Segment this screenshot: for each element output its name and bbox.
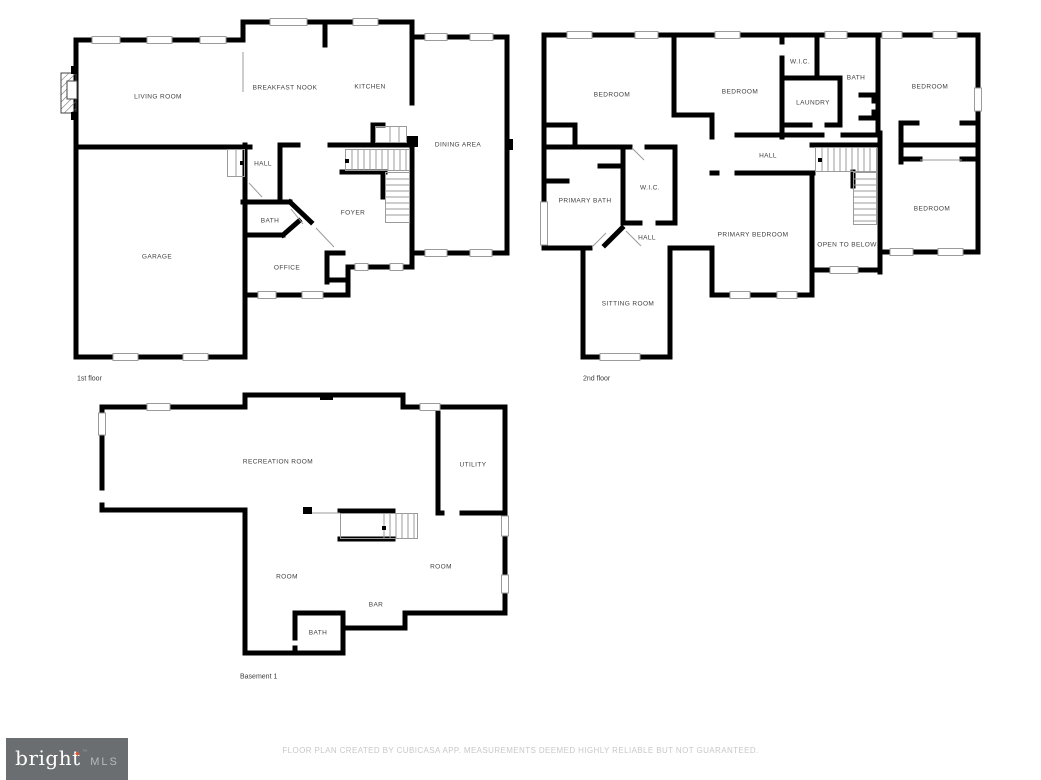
floor-label-basement-1: Basement 1	[240, 674, 277, 681]
second-floor-windows	[541, 32, 982, 361]
room-label-sitting-room: SITTING ROOM	[602, 301, 654, 308]
second-floor-stairs	[816, 148, 877, 225]
basement-linework	[99, 393, 509, 653]
room-label-bedroom-4: BEDROOM	[914, 206, 950, 213]
brightmls-logo: bright✦™MLS	[6, 738, 128, 780]
logo-wordmark: bright	[15, 745, 80, 771]
room-label-hall-3: HALL	[638, 235, 656, 242]
room-label-bar: BAR	[369, 602, 384, 609]
room-label-utility: UTILITY	[460, 462, 487, 469]
room-label-garage: GARAGE	[142, 254, 172, 261]
room-label-bedroom-2: BEDROOM	[722, 89, 758, 96]
room-label-recreation-room: RECREATION ROOM	[243, 459, 313, 466]
room-label-dining-area: DINING AREA	[435, 142, 481, 149]
second-floor-linework	[541, 32, 982, 361]
room-label-hall-2: HALL	[759, 153, 777, 160]
room-label-bath-3: BATH	[309, 630, 327, 637]
trademark-symbol: ™	[82, 749, 87, 755]
floor-label-2nd-floor: 2nd floor	[583, 376, 610, 383]
room-label-open-to-below: OPEN TO BELOW	[817, 242, 877, 249]
disclaimer-text: FLOOR PLAN CREATED BY CUBICASA APP. MEAS…	[0, 746, 1041, 755]
first-floor-windows	[92, 19, 493, 361]
room-label-office: OFFICE	[274, 265, 300, 272]
brightmls-logo-lockup: bright✦™MLS	[15, 745, 119, 771]
first-floor-linework	[61, 19, 513, 361]
room-label-bedroom-1: BEDROOM	[594, 92, 630, 99]
room-label-room-1: ROOM	[276, 574, 298, 581]
room-label-laundry: LAUNDRY	[796, 100, 830, 107]
floor-label-1st-floor: 1st floor	[77, 376, 102, 383]
basement-stairs	[312, 513, 418, 539]
room-label-kitchen: KITCHEN	[354, 84, 385, 91]
room-label-breakfast-nook: BREAKFAST NOOK	[253, 85, 318, 92]
room-label-foyer: FOYER	[341, 210, 365, 217]
room-label-wic-2: W.I.C.	[640, 185, 660, 192]
floorplan-linework	[0, 0, 1041, 780]
room-label-bath-2: BATH	[847, 75, 865, 82]
room-label-hall-1: HALL	[254, 161, 272, 168]
room-label-living-room: LIVING ROOM	[134, 94, 182, 101]
room-label-primary-bedroom: PRIMARY BEDROOM	[718, 232, 789, 239]
star-icon: ✦	[74, 749, 82, 760]
room-label-primary-bath: PRIMARY BATH	[559, 198, 612, 205]
logo-suffix: MLS	[90, 756, 119, 768]
room-label-bedroom-3: BEDROOM	[912, 84, 948, 91]
room-label-wic-1: W.I.C.	[790, 59, 810, 66]
room-label-room-2: ROOM	[430, 564, 452, 571]
floor-plan-page: LIVING ROOM BREAKFAST NOOK KITCHEN DININ…	[0, 0, 1041, 780]
room-label-bath-1: BATH	[261, 218, 279, 225]
